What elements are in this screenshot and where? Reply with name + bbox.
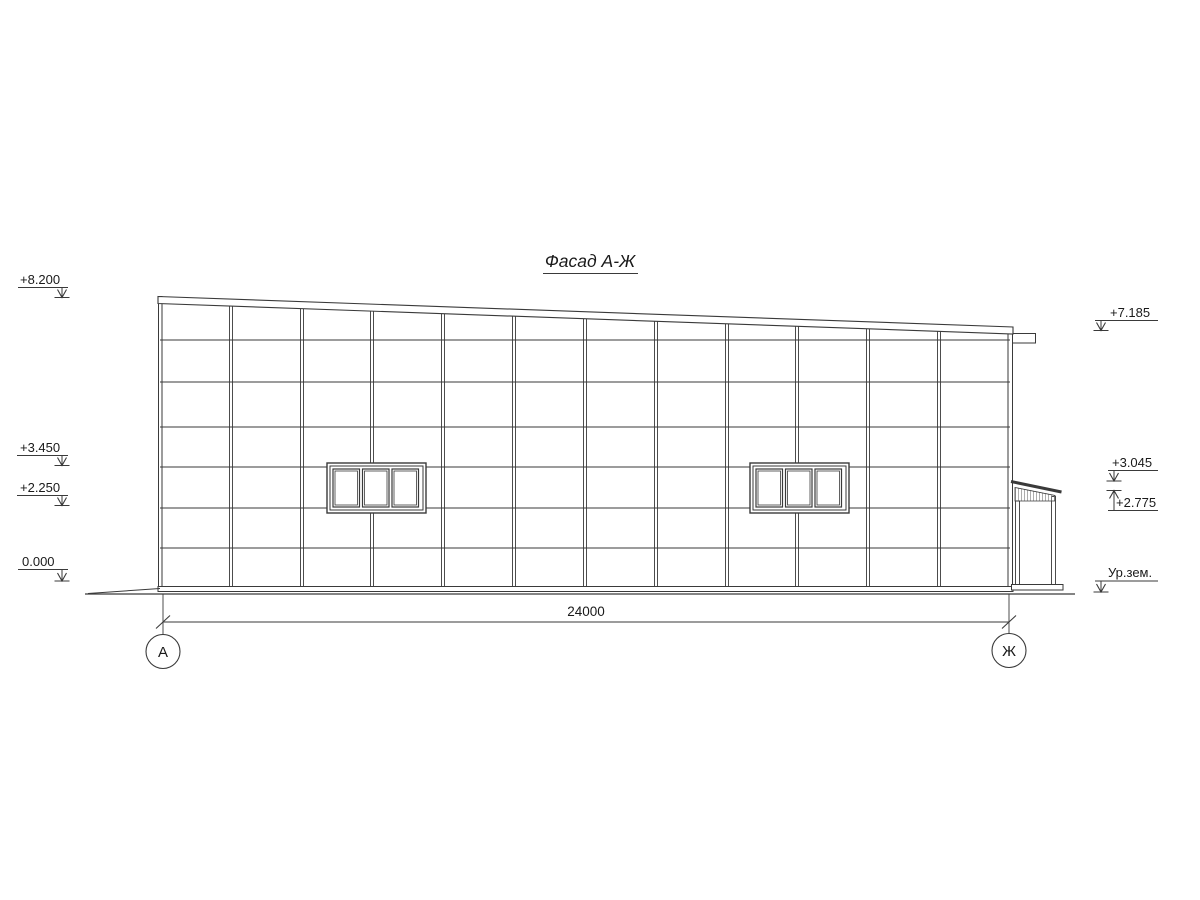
elevation-mark-zero: 0.000	[18, 554, 70, 581]
grid-mullion	[301, 308, 304, 588]
ground-taper-line	[88, 589, 160, 594]
roof-parapet-band	[158, 297, 1013, 335]
dimension-chain: 24000	[156, 594, 1016, 634]
grid-mullion	[371, 311, 374, 589]
elevation-label: +2.775	[1116, 495, 1156, 510]
elevation-mark-ground-level: Ур.зем.	[1094, 565, 1159, 592]
facade-mullions	[230, 306, 941, 589]
window-right	[750, 463, 849, 513]
elevation-label: +8.200	[20, 272, 60, 287]
axis-bubble-zh: Ж	[992, 634, 1026, 668]
elevation-label: +3.450	[20, 440, 60, 455]
elevation-label: Ур.зем.	[1108, 565, 1152, 580]
right-edge-wall	[1008, 327, 1013, 588]
elevation-label: +7.185	[1110, 305, 1150, 320]
roof-gutter-outlet	[1013, 334, 1036, 344]
annex	[1011, 482, 1063, 591]
dimension-value: 24000	[567, 604, 605, 619]
window-left	[327, 463, 426, 513]
annex-base	[1012, 585, 1064, 591]
axis-bubble-a: А	[146, 635, 180, 669]
axis-label: А	[158, 644, 168, 661]
drawing-sheet: Фасад А-Ж	[0, 0, 1200, 900]
grid-mullion	[230, 306, 233, 589]
annex-left-wall	[1016, 501, 1020, 585]
elevation-mark-plus7185: +7.185	[1094, 305, 1159, 331]
elevation-label: 0.000	[22, 554, 55, 569]
elevation-label: +2.250	[20, 480, 60, 495]
facade-drawing: Фасад А-Ж	[0, 0, 1200, 900]
grid-mullion	[867, 329, 870, 589]
grid-mullion	[796, 326, 799, 588]
elevation-mark-plus3045: +3.045	[1107, 455, 1159, 481]
annex-right-wall	[1052, 497, 1056, 586]
grid-mullion	[938, 331, 941, 588]
elevation-label: +3.045	[1112, 455, 1152, 470]
grid-mullion	[442, 314, 445, 589]
elevation-mark-plus2250: +2.250	[17, 480, 70, 506]
axis-label: Ж	[1002, 643, 1016, 660]
drawing-title: Фасад А-Ж	[545, 251, 636, 271]
elevation-mark-plus8200: +8.200	[18, 272, 70, 298]
facade-horizontal-joints	[160, 340, 1010, 548]
building-outline	[158, 297, 1036, 592]
grid-mullion	[513, 316, 516, 588]
elevation-mark-plus3450: +3.450	[17, 440, 70, 466]
elevation-mark-plus2775: +2.775	[1107, 491, 1159, 511]
base-plinth-band	[158, 587, 1013, 592]
